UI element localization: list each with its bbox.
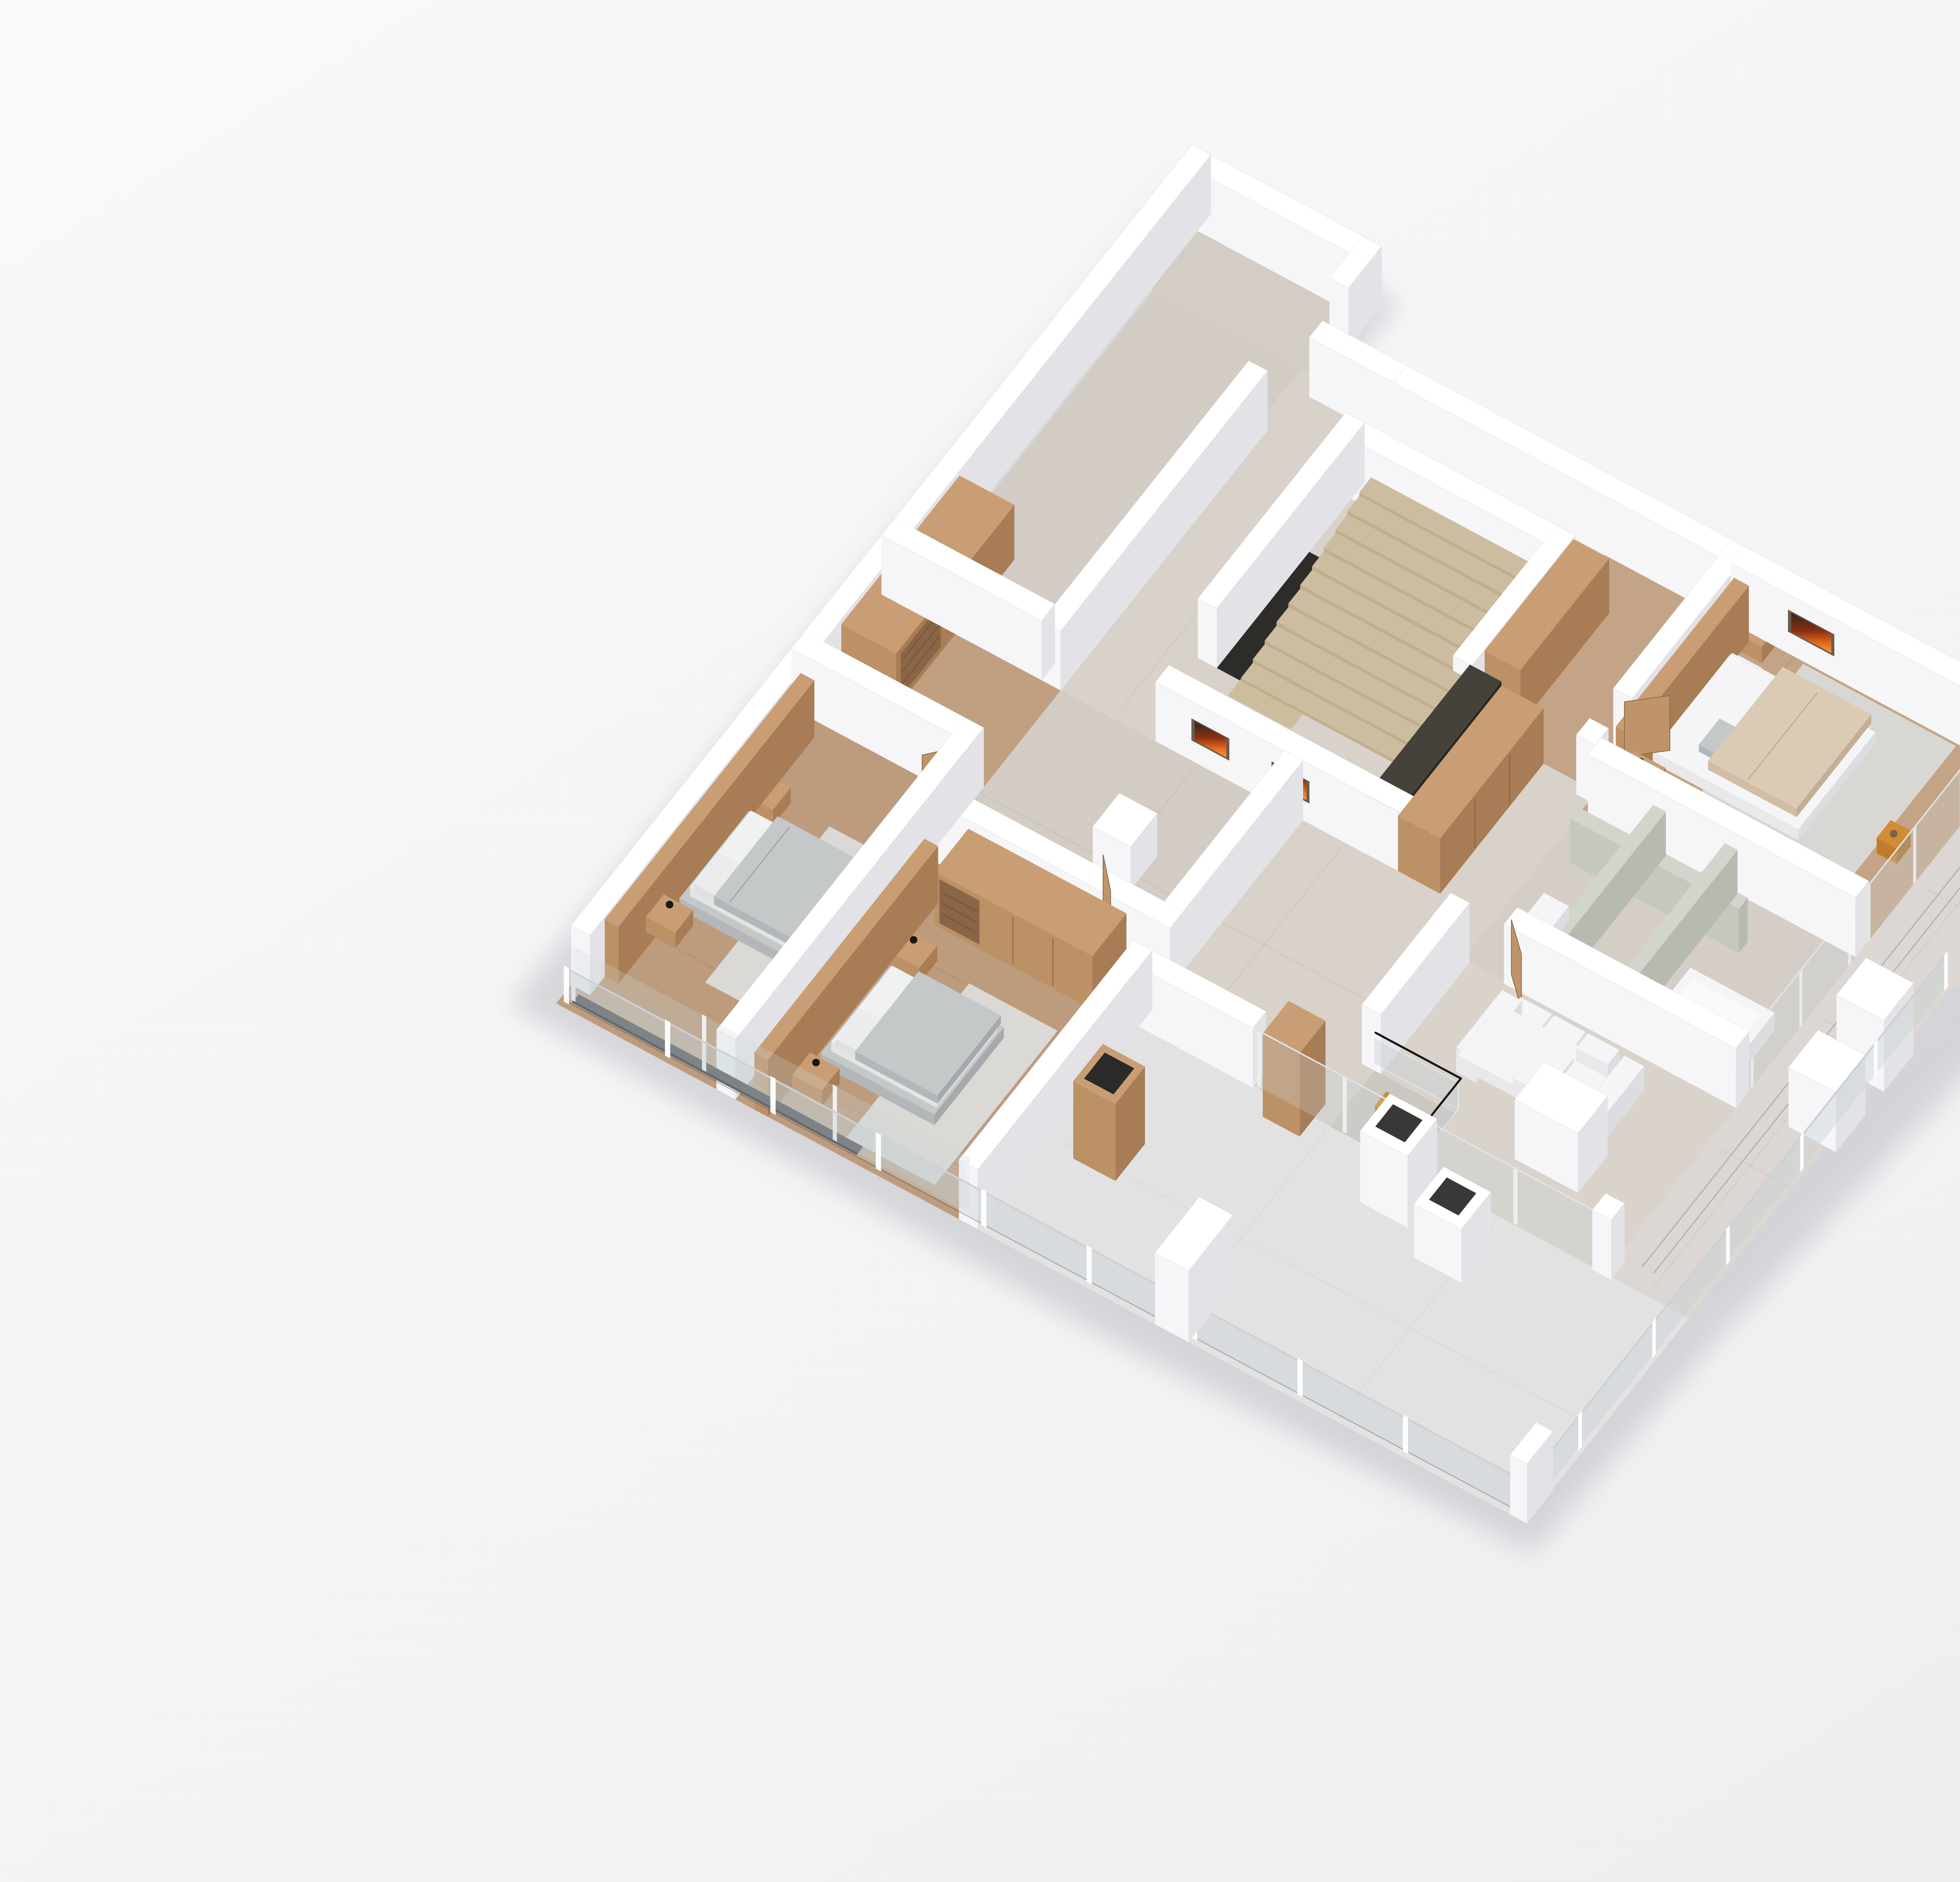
railing-se-post-1	[1944, 950, 1948, 991]
railing-se-post-6	[1578, 1411, 1582, 1451]
beda-lamp-2	[666, 901, 673, 908]
living-glass-mullion-2	[1343, 1076, 1347, 1134]
floorplan-3d-render	[0, 0, 1960, 1882]
master-glass-mullion-3	[1913, 825, 1916, 885]
wardrobe-spine-seam-2	[1474, 798, 1475, 849]
living-glass-mullion-1	[1257, 1030, 1261, 1088]
bath-glass-mullion-2	[1799, 968, 1802, 1028]
railing-sw-post-3	[770, 1076, 775, 1115]
floorplan-3d-view	[0, 0, 1960, 1882]
railing-sw-post-6	[1087, 1245, 1092, 1284]
bedb-lamp-2	[812, 1059, 820, 1066]
railing-sw-post-2	[665, 1019, 670, 1059]
railing-se-post-5	[1652, 1317, 1656, 1358]
wall-living-terrace-stub	[1592, 1193, 1624, 1279]
railing-sw-post-9	[1403, 1415, 1408, 1454]
master-plant-pot-top	[1890, 830, 1898, 837]
wardrobe-spine-seam-1	[1509, 754, 1510, 805]
railing-sw-post-8	[1298, 1358, 1303, 1397]
railing-sw-post-4	[876, 1132, 881, 1172]
railing-se-post-3	[1800, 1132, 1804, 1172]
railing-se-post-4	[1726, 1224, 1730, 1265]
door-master	[1624, 696, 1670, 756]
bedb-wardrobe-seam-2	[1052, 938, 1054, 986]
living-glass-mullion-4	[1513, 1167, 1517, 1225]
railing-se-post-2	[1874, 1039, 1877, 1079]
bedb-wardrobe-seam-1	[1012, 916, 1014, 965]
railing-sw-post-1	[564, 965, 569, 1005]
railing-sw-post-5	[981, 1189, 986, 1228]
